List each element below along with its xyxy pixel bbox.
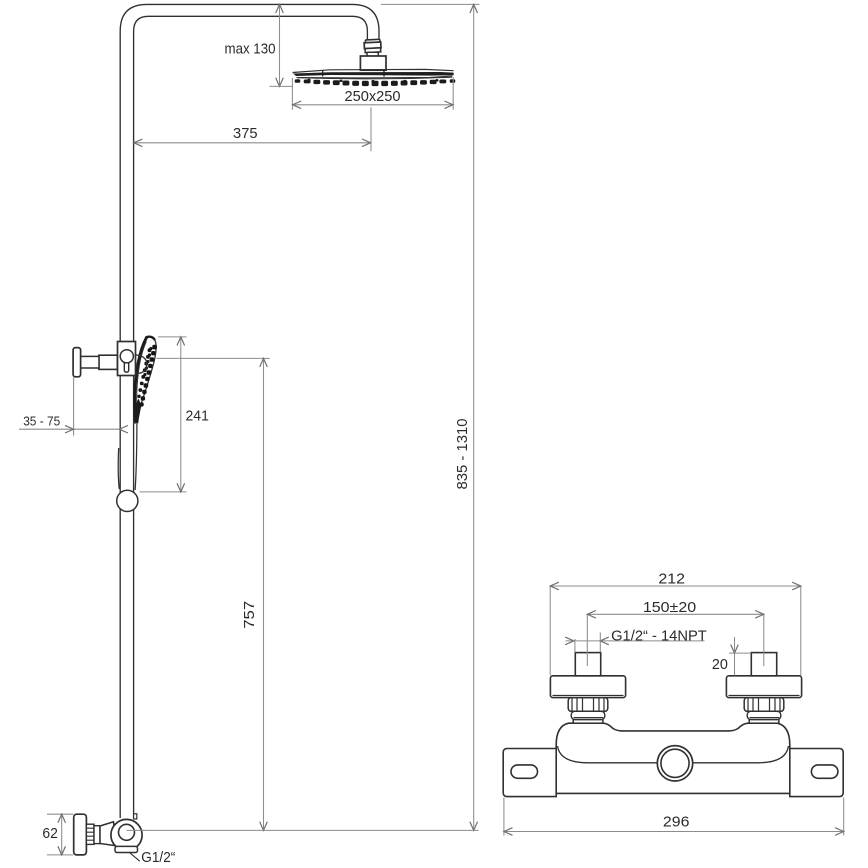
- svg-text:G1/2“ - 14NPT: G1/2“ - 14NPT: [611, 628, 707, 644]
- svg-text:375: 375: [233, 126, 258, 142]
- svg-text:296: 296: [663, 815, 690, 831]
- svg-text:757: 757: [242, 601, 258, 629]
- svg-text:212: 212: [658, 571, 685, 587]
- svg-text:150±20: 150±20: [643, 600, 696, 616]
- svg-text:35 - 75: 35 - 75: [23, 413, 60, 428]
- svg-text:250x250: 250x250: [345, 89, 401, 105]
- svg-text:241: 241: [186, 408, 209, 424]
- svg-text:62: 62: [42, 826, 58, 842]
- svg-text:835 - 1310: 835 - 1310: [455, 419, 471, 490]
- svg-text:G1/2“: G1/2“: [141, 850, 175, 866]
- svg-text:20: 20: [712, 657, 728, 673]
- svg-text:max 130: max 130: [225, 41, 276, 57]
